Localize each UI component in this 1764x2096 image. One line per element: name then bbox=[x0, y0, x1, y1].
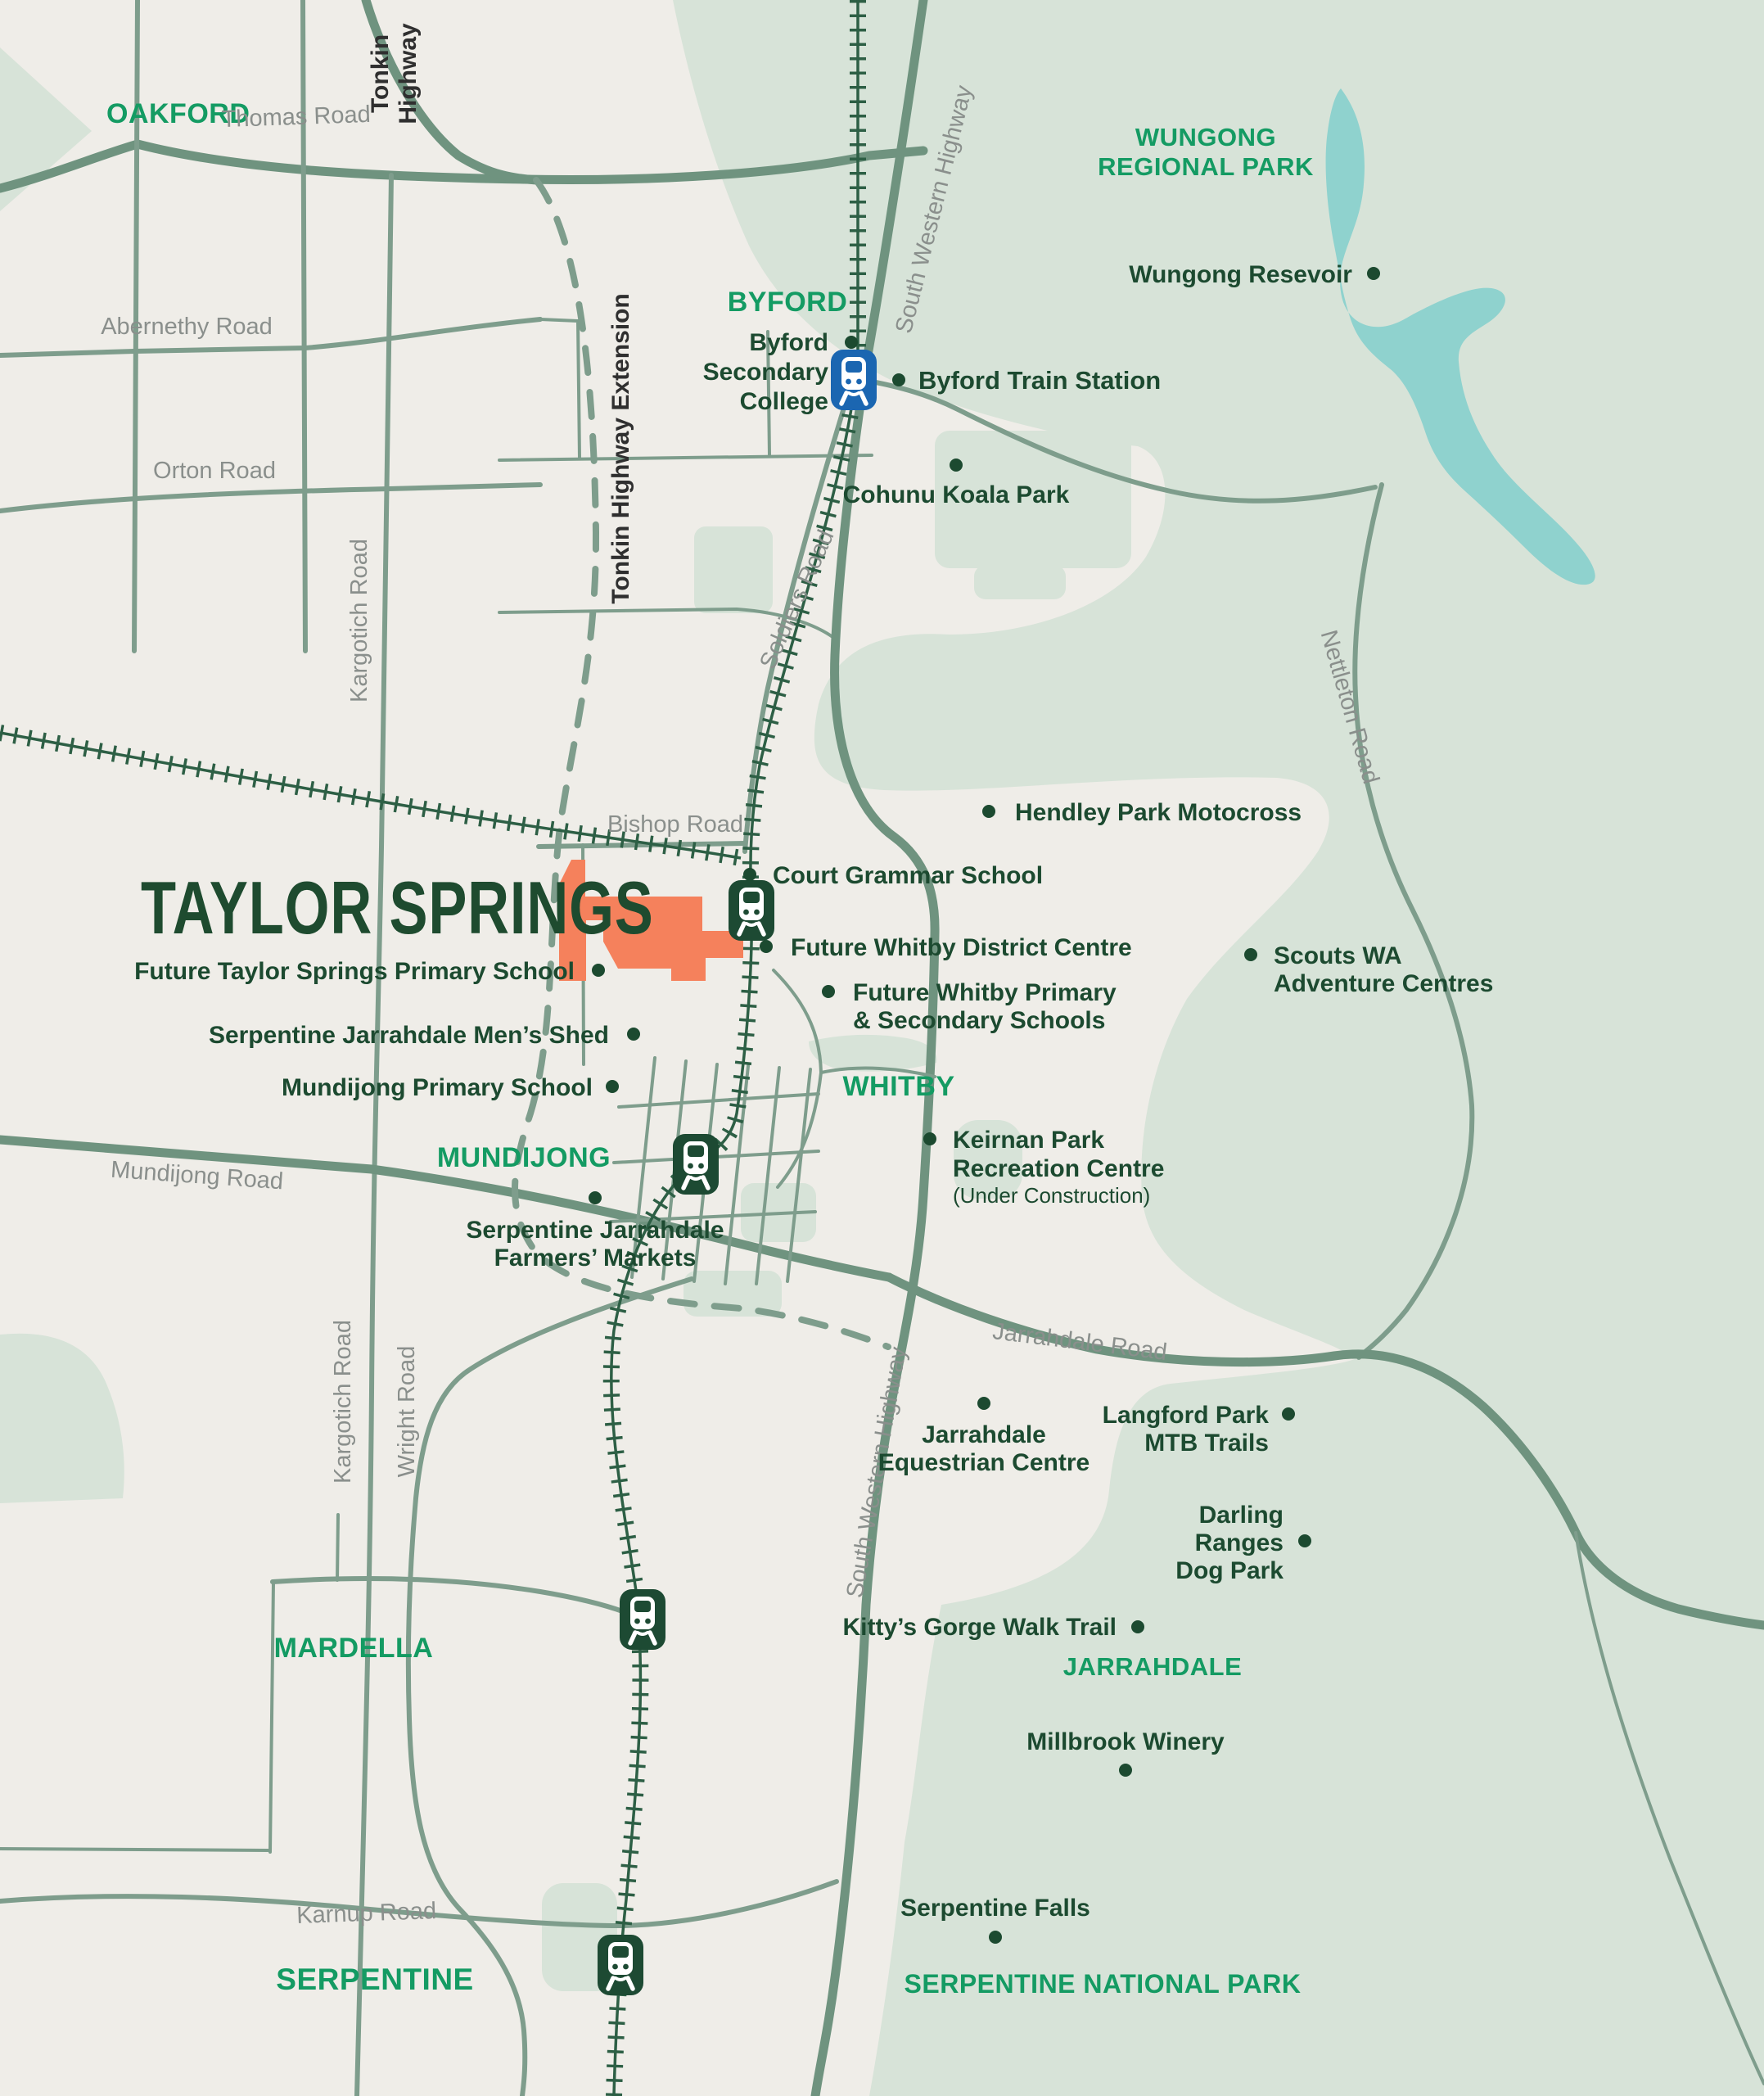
tonkin-highway-extension-label: Tonkin Highway Extension bbox=[607, 293, 634, 603]
court-grammar-dot bbox=[743, 868, 756, 881]
byford-station-dot bbox=[892, 373, 905, 386]
karnup-road-label: Karnup Road bbox=[296, 1898, 437, 1929]
mens-shed-dot bbox=[627, 1028, 640, 1041]
taylor-springs-title: TAYLOR SPRINGS bbox=[141, 866, 654, 950]
kargotich-road-label-south: Kargotich Road bbox=[330, 1320, 356, 1484]
taylor-primary-dot bbox=[592, 964, 605, 977]
equestrian-label-line2: Equestrian Centre bbox=[878, 1449, 1090, 1476]
park-patch-top-centre bbox=[737, 34, 787, 105]
byford-local-road-1 bbox=[499, 455, 872, 460]
whitby-district-dot bbox=[760, 940, 773, 953]
wright-road-label: Wright Road bbox=[394, 1346, 420, 1478]
byford-college-label-line3: College bbox=[740, 388, 828, 415]
scouts-label-line2: Adventure Centres bbox=[1274, 970, 1493, 997]
locality-mundijong: MUNDIJONG bbox=[437, 1142, 611, 1173]
mundijong-primary-dot bbox=[606, 1080, 619, 1093]
millbrook-winery-label: Millbrook Winery bbox=[1026, 1728, 1225, 1755]
byford-college-dot bbox=[845, 336, 858, 349]
scouts-label-line1: Scouts WA bbox=[1274, 942, 1402, 969]
kittys-gorge-label: Kitty’s Gorge Walk Trail bbox=[842, 1614, 1117, 1641]
keirnan-label-line2: Recreation Centre bbox=[953, 1155, 1164, 1182]
serpentine-falls-dot bbox=[989, 1931, 1002, 1944]
kargotich-road-label-north: Kargotich Road bbox=[346, 539, 372, 702]
whitby-schools-label-line2: & Secondary Schools bbox=[853, 1007, 1105, 1034]
cohunu-dot bbox=[950, 458, 963, 472]
court-grammar-label: Court Grammar School bbox=[773, 862, 1043, 889]
langford-label-line2: MTB Trails bbox=[1144, 1430, 1269, 1457]
taylor-primary-label: Future Taylor Springs Primary School bbox=[134, 958, 575, 985]
byford-college-label-line1: Byford bbox=[749, 329, 828, 356]
byford-train-station-icon bbox=[831, 350, 877, 410]
orton-road-label: Orton Road bbox=[153, 458, 276, 484]
locality-serpentine-national-park: SERPENTINE NATIONAL PARK bbox=[905, 1969, 1302, 1999]
keirnan-label-line1: Keirnan Park bbox=[953, 1127, 1104, 1154]
locality-whitby: WHITBY bbox=[842, 1071, 954, 1102]
mundijong-station-icon bbox=[673, 1134, 719, 1195]
whitby-district-centre-label: Future Whitby District Centre bbox=[791, 934, 1132, 961]
locality-mardella: MARDELLA bbox=[274, 1633, 434, 1664]
map-svg: TAYLOR SPRINGS OAKFORD BYFORD WUNGONG RE… bbox=[0, 0, 1764, 2096]
mardella-road-south bbox=[0, 1849, 270, 1850]
farmers-markets-dot bbox=[589, 1191, 602, 1204]
hendley-dot bbox=[982, 805, 995, 818]
abernethy-road-label: Abernethy Road bbox=[101, 314, 273, 340]
mardella-road-top bbox=[337, 1515, 338, 1580]
millbrook-dot bbox=[1119, 1764, 1132, 1777]
keirnan-dot bbox=[923, 1132, 936, 1145]
darling-label-line1: Darling bbox=[1199, 1502, 1284, 1529]
serpentine-station-icon bbox=[598, 1935, 643, 1995]
mardella-road-west bbox=[270, 1582, 273, 1852]
whitby-schools-dot bbox=[822, 985, 835, 998]
park-patch-west bbox=[0, 1334, 124, 1503]
darling-ranges-dot bbox=[1298, 1534, 1311, 1547]
locality-jarrahdale: JARRAHDALE bbox=[1063, 1652, 1243, 1681]
keirnan-label-line3: (Under Construction) bbox=[953, 1183, 1150, 1208]
langford-dot bbox=[1282, 1407, 1295, 1421]
cohunu-koala-park-label: Cohunu Koala Park bbox=[843, 481, 1070, 508]
mundijong-primary-label: Mundijong Primary School bbox=[282, 1074, 593, 1101]
thomas-road-label: Thomas Road bbox=[221, 102, 371, 133]
byford-college-label-line2: Secondary bbox=[703, 359, 829, 386]
whitby-future-station-icon bbox=[729, 880, 774, 941]
hendley-park-label: Hendley Park Motocross bbox=[1015, 799, 1302, 826]
wungong-reservoir-label: Wungong Resevoir bbox=[1129, 261, 1352, 288]
kittys-gorge-dot bbox=[1131, 1620, 1144, 1633]
locality-wungong-line2: REGIONAL PARK bbox=[1098, 152, 1314, 181]
park-patch-byford-south bbox=[974, 565, 1066, 599]
bishop-road-label: Bishop Road bbox=[607, 811, 743, 838]
whitby-local-road-1 bbox=[774, 970, 821, 1073]
darling-label-line2: Ranges bbox=[1195, 1529, 1284, 1556]
whitby-schools-label-line1: Future Whitby Primary bbox=[853, 979, 1117, 1006]
railway-west-branch bbox=[0, 733, 741, 858]
locality-byford: BYFORD bbox=[728, 287, 848, 318]
oakford-road-east bbox=[303, 0, 305, 651]
equestrian-label-line1: Jarrahdale bbox=[922, 1421, 1046, 1448]
farmers-markets-label-line1: Serpentine Jarrahdale bbox=[466, 1217, 724, 1244]
tonkin-highway-label-line1: Tonkin bbox=[367, 34, 394, 113]
tonkin-highway-label-line2: Highway bbox=[395, 23, 422, 124]
kargotich-road bbox=[357, 175, 391, 2096]
mens-shed-label: Serpentine Jarrahdale Men’s Shed bbox=[209, 1022, 609, 1049]
park-patch-whitby-pond bbox=[809, 1035, 936, 1072]
park-patch-soldiers bbox=[694, 526, 773, 613]
scouts-dot bbox=[1244, 948, 1257, 961]
mardella-station-icon bbox=[620, 1589, 665, 1650]
wungong-reservoir-dot bbox=[1367, 267, 1380, 280]
langford-label-line1: Langford Park bbox=[1103, 1402, 1270, 1429]
darling-label-line3: Dog Park bbox=[1175, 1557, 1284, 1584]
locality-wungong-line1: WUNGONG bbox=[1135, 123, 1276, 151]
equestrian-dot bbox=[977, 1397, 990, 1410]
orton-road bbox=[0, 485, 540, 511]
jarrahdale-road-label: Jarrahdale Road bbox=[991, 1318, 1169, 1366]
serpentine-falls-label: Serpentine Falls bbox=[900, 1895, 1090, 1922]
farmers-markets-label-line2: Farmers’ Markets bbox=[494, 1244, 697, 1272]
map-canvas: TAYLOR SPRINGS OAKFORD BYFORD WUNGONG RE… bbox=[0, 0, 1764, 2096]
byford-train-station-label: Byford Train Station bbox=[918, 366, 1161, 395]
byford-local-road-4 bbox=[540, 319, 580, 458]
locality-serpentine: SERPENTINE bbox=[276, 1963, 473, 1996]
mardella-road-north bbox=[273, 1579, 643, 1619]
